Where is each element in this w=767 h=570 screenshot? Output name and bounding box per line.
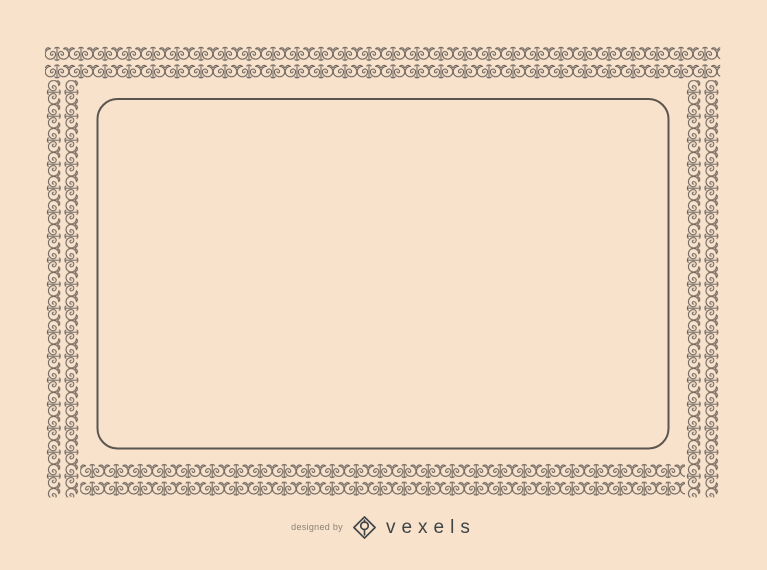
credit-prefix: designed by bbox=[291, 522, 343, 532]
pen-circle bbox=[361, 522, 369, 530]
design-canvas: designed by vexels bbox=[0, 0, 767, 570]
vexels-diamond-pen-icon bbox=[351, 514, 378, 541]
border-band-bottom bbox=[80, 462, 685, 497]
brand-name: vexels bbox=[386, 518, 476, 537]
credit-bar: designed by vexels bbox=[0, 510, 767, 544]
border-band-right bbox=[685, 80, 720, 497]
border-band-top bbox=[45, 45, 720, 80]
border-band-left bbox=[45, 80, 80, 497]
ornamental-frame-graphic bbox=[0, 0, 767, 570]
